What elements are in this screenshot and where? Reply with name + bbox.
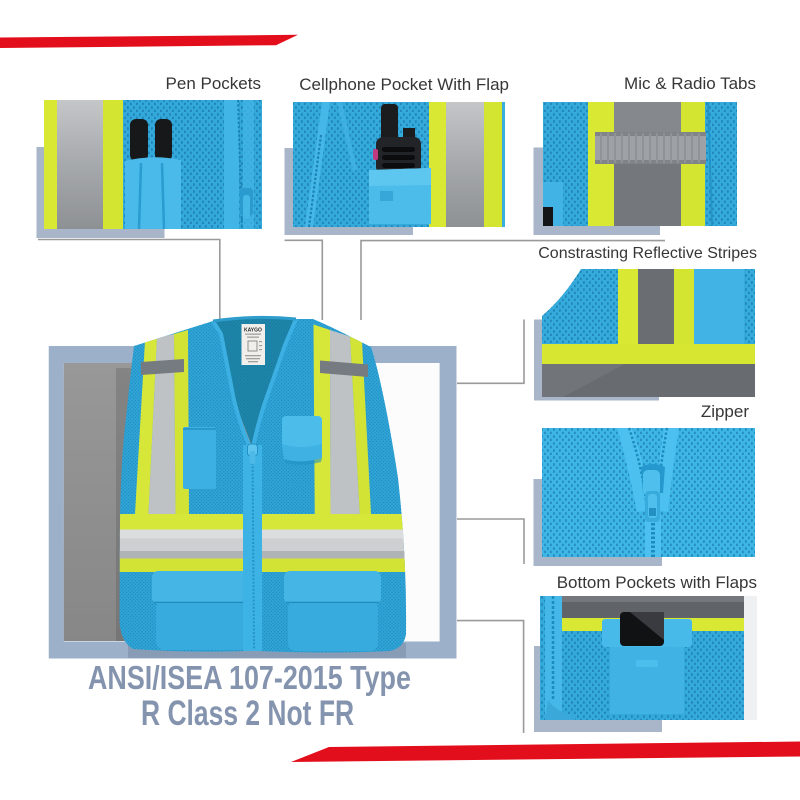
svg-text:KAYGO: KAYGO (244, 328, 262, 334)
